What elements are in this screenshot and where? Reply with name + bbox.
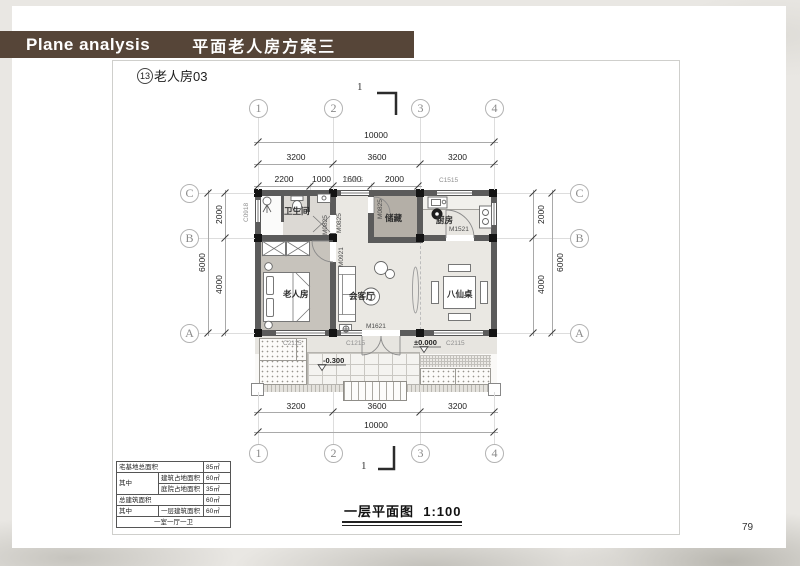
section-mark-label-bottom: 1 [361, 460, 367, 472]
wardrobe-left [262, 241, 286, 256]
dim-top-major-2: 3600 [334, 153, 420, 162]
area-sublabel: 庭院占地面积 [159, 484, 204, 495]
plan-subtitle: 13 老人房03 [137, 66, 207, 85]
ext-line [197, 333, 255, 334]
grid-bubble-2-bottom: 2 [324, 444, 343, 463]
door-gap-kitchen [446, 235, 474, 241]
wardrobe-right [286, 241, 310, 256]
dim-top-major-3: 3200 [421, 153, 494, 162]
entry-steps [343, 381, 407, 401]
column-1b [254, 234, 262, 242]
dim-bottom-major-2: 3600 [334, 402, 420, 411]
porch-hatch-right [420, 355, 491, 367]
area-sublabel: 一层建筑面积 [159, 506, 204, 517]
grid-bubble-1-top: 1 [249, 99, 268, 118]
bench-bottom [448, 313, 471, 321]
ext-line [494, 392, 495, 444]
dim-bottom-major-1: 3200 [259, 402, 333, 411]
area-table: 宅基地总面积 85㎡ 其中 建筑占地面积 60㎡ 庭院占地面积 35㎡ 总建筑面… [116, 461, 231, 528]
column-4b [489, 234, 497, 242]
window-label-c1215-top: C1215 [344, 177, 363, 184]
grid-bubble-3-top: 3 [411, 99, 430, 118]
caption-underline-thin [342, 525, 462, 526]
column-4c [489, 189, 497, 197]
window-c0918 [255, 200, 261, 222]
area-value: 60㎡ [204, 506, 231, 517]
plan-subtitle-text: 老人房03 [154, 66, 207, 85]
room-label-dining-table: 八仙桌 [447, 288, 473, 300]
table-row: 宅基地总面积 85㎡ [117, 462, 231, 473]
dim-bottom-major-3: 3200 [421, 402, 494, 411]
table-row: 一室一厅一卫 [117, 517, 231, 528]
ext-line [494, 116, 495, 190]
dim-line [225, 190, 226, 336]
grid-bubble-b-right: B [570, 229, 589, 248]
window-label-c1515: C1515 [439, 177, 458, 184]
grid-bubble-2-top: 2 [324, 99, 343, 118]
area-sublabel: 建筑占地面积 [159, 473, 204, 484]
caption-title: 一层平面图 [344, 504, 414, 519]
table-row: 其中 建筑占地面积 60㎡ [117, 473, 231, 484]
dim-top-minor-2: 1000 [310, 175, 333, 184]
table-row: 总建筑面积 60㎡ [117, 495, 231, 506]
window-kitchen-east [491, 203, 497, 225]
room-label-storage: 储藏 [385, 212, 402, 224]
window-c2115-left [276, 330, 325, 336]
door-label-m0825-storage: M0825 [377, 197, 385, 221]
plan-number-badge: 13 [137, 68, 153, 84]
column-1a [254, 329, 262, 337]
dim-top-minor-4: 2000 [371, 175, 418, 184]
grid-bubble-4-bottom: 4 [485, 444, 504, 463]
door-label-m0825-bath-right: M0825 [336, 211, 344, 235]
grid-bubble-4-top: 4 [485, 99, 504, 118]
room-label-bedroom: 老人房 [283, 288, 309, 300]
window-c1215-top [341, 190, 369, 196]
dim-top-minor-1: 2200 [258, 175, 310, 184]
door-label-m0825-bath-left: M0825 [322, 213, 330, 237]
window-c1515 [437, 190, 472, 196]
area-value: 60㎡ [204, 473, 231, 484]
room-label-kitchen: 厨房 [436, 214, 453, 226]
header-title-zh: 平面老人房方案三 [192, 33, 336, 57]
window-label-c1215-bottom: C1215 [346, 340, 365, 347]
door-gap-storage [368, 197, 374, 213]
column-2a [329, 329, 337, 337]
pillow-1 [266, 276, 274, 295]
dim-right-upper: 2000 [536, 200, 546, 230]
dim-line [254, 142, 498, 143]
bench-top [448, 264, 471, 272]
grid-bubble-1-bottom: 1 [249, 444, 268, 463]
dim-left-total: 6000 [197, 248, 207, 278]
planter-right-divider [455, 368, 456, 385]
drawing-caption: 一层平面图 1:100 [344, 501, 460, 520]
grid-bubble-3-bottom: 3 [411, 444, 430, 463]
door-label-m0921: M0921 [338, 245, 346, 269]
door-label-m1621: M1621 [366, 323, 386, 330]
window-label-c0918: C0918 [243, 199, 251, 225]
column-3c [416, 189, 424, 197]
gridline-3-dashed [420, 241, 421, 330]
caption-scale: 1:100 [423, 504, 461, 519]
grid-bubble-a-left: A [180, 324, 199, 343]
area-value: 85㎡ [204, 462, 231, 473]
grid-bubble-a-right: A [570, 324, 589, 343]
bench-right [480, 281, 488, 304]
dim-line [254, 186, 422, 187]
dim-line [533, 190, 534, 336]
grid-bubble-b-left: B [180, 229, 199, 248]
kitchen-counter [423, 196, 491, 210]
column-1c [254, 189, 262, 197]
area-label: 其中 [117, 506, 159, 517]
ext-line [197, 238, 255, 239]
door-label-m1521: M1521 [449, 226, 469, 233]
column-3b [416, 234, 424, 242]
area-value: 35㎡ [204, 484, 231, 495]
column-4a [489, 329, 497, 337]
floor-shower [258, 196, 283, 237]
header-title-en: Plane analysis [26, 35, 150, 55]
window-label-c2115-left: C2115 [283, 340, 302, 347]
dim-top-total: 10000 [328, 131, 424, 140]
dim-left-upper: 2000 [214, 200, 224, 230]
room-label-living: 会客厅 [349, 290, 375, 302]
ext-line [420, 392, 421, 444]
door-gap-entry [362, 330, 400, 336]
dim-right-lower: 4000 [536, 270, 546, 300]
window-c2115-right [434, 330, 483, 336]
header-bar: Plane analysis 平面老人房方案三 [0, 31, 414, 58]
caption-underline-thick [342, 521, 462, 523]
dim-line [254, 432, 498, 433]
column-2c [329, 189, 337, 197]
section-mark-label-top: 1 [357, 81, 363, 93]
column-2b [329, 234, 337, 242]
dim-right-total: 6000 [555, 248, 565, 278]
door-gap-bedroom [330, 241, 336, 262]
area-label: 其中 [117, 473, 159, 495]
table-row: 其中 一层建筑面积 60㎡ [117, 506, 231, 517]
area-footer: 一室一厅一卫 [117, 517, 231, 528]
grid-bubble-c-left: C [180, 184, 199, 203]
window-label-c2115-right: C2115 [446, 340, 465, 347]
dim-left-lower: 4000 [214, 270, 224, 300]
ext-line [258, 392, 259, 444]
grid-bubble-c-right: C [570, 184, 589, 203]
ext-line [197, 193, 255, 194]
room-label-bathroom: 卫生间 [284, 205, 310, 217]
dim-line [552, 190, 553, 336]
dim-line [254, 412, 498, 413]
ext-line [333, 392, 334, 444]
bench-left [431, 281, 439, 304]
area-label: 总建筑面积 [117, 495, 204, 506]
page-number: 79 [742, 522, 753, 533]
level-zero: ±0.000 [414, 338, 437, 347]
area-value: 60㎡ [204, 495, 231, 506]
dim-line [208, 190, 209, 336]
dim-bottom-total: 10000 [328, 421, 424, 430]
pillow-2 [266, 298, 274, 317]
wall-storage-south [368, 237, 423, 243]
slide-canvas: Plane analysis 平面老人房方案三 13 老人房03 [0, 0, 800, 566]
column-3a [416, 329, 424, 337]
level-minus-300: -0.300 [323, 356, 344, 365]
planter-left-divider-h [259, 360, 307, 361]
dim-top-major-1: 3200 [259, 153, 333, 162]
dim-line [254, 164, 498, 165]
area-label: 宅基地总面积 [117, 462, 204, 473]
